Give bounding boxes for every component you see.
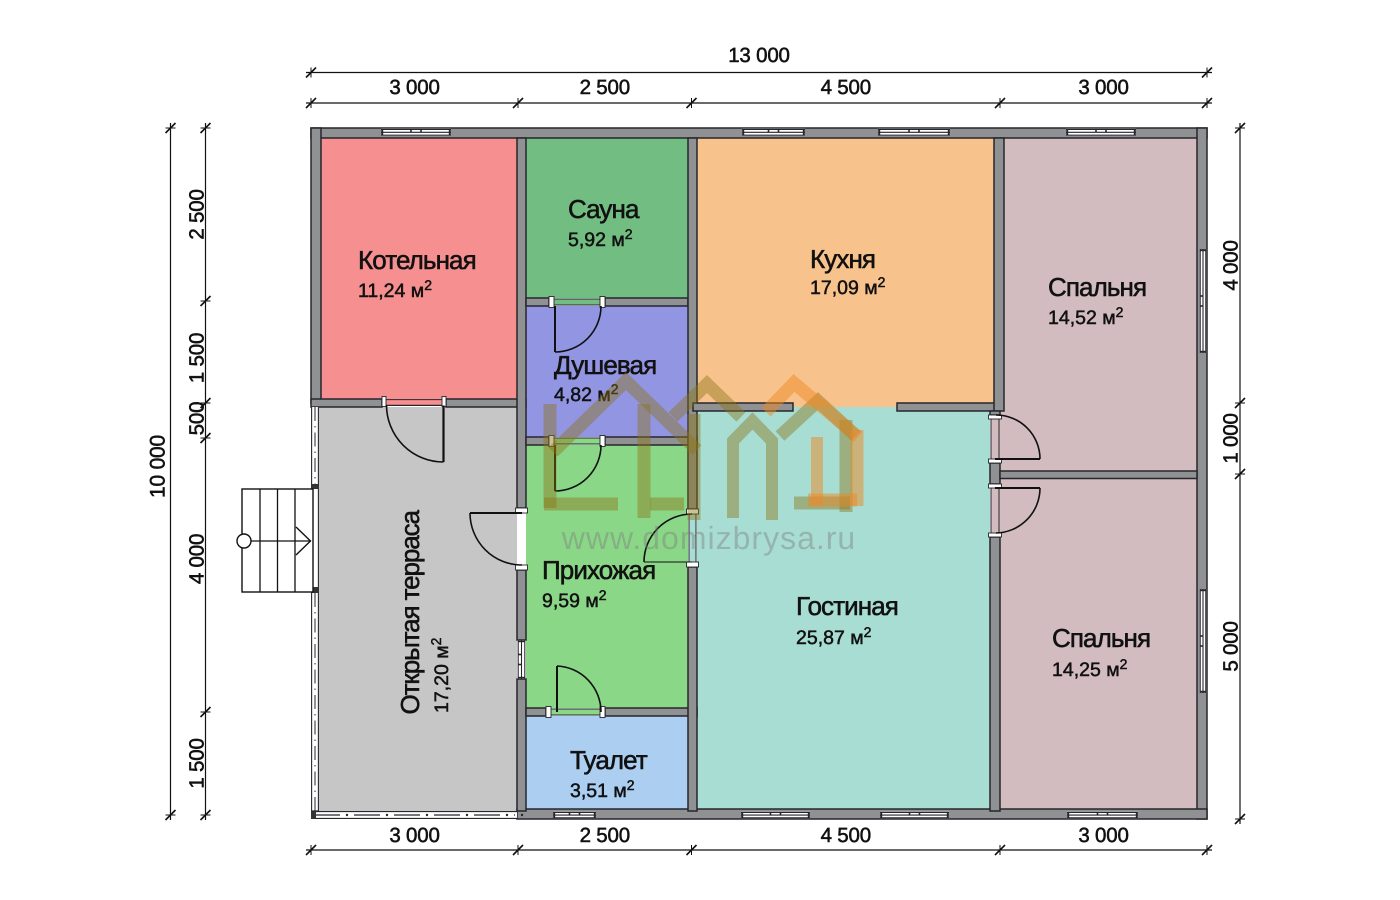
svg-text:13 000: 13 000 [728, 44, 790, 67]
svg-text:4 500: 4 500 [821, 76, 871, 99]
svg-text:10 000: 10 000 [147, 435, 170, 498]
svg-text:Гостиная: Гостиная [796, 591, 898, 621]
svg-text:1 000: 1 000 [1220, 413, 1243, 463]
svg-text:4 000: 4 000 [1220, 240, 1243, 290]
svg-text:3,51 м2: 3,51 м2 [570, 777, 635, 802]
svg-text:2 500: 2 500 [186, 189, 209, 239]
svg-text:3 000: 3 000 [389, 76, 439, 99]
svg-text:www.domizbrysa.ru: www.domizbrysa.ru [561, 520, 856, 556]
svg-text:1 500: 1 500 [186, 333, 209, 383]
svg-text:Сауна: Сауна [568, 194, 640, 224]
svg-text:5,92 м2: 5,92 м2 [568, 226, 633, 251]
svg-text:Прихожая: Прихожая [542, 555, 655, 585]
svg-text:4 500: 4 500 [821, 824, 871, 847]
svg-text:17,09 м2: 17,09 м2 [810, 274, 886, 299]
svg-text:Туалет: Туалет [570, 745, 648, 775]
svg-text:2 500: 2 500 [580, 824, 630, 847]
svg-text:Душевая: Душевая [554, 350, 656, 380]
svg-text:2 500: 2 500 [580, 76, 630, 99]
svg-text:Открытая терраса: Открытая терраса [395, 510, 425, 715]
svg-text:3 000: 3 000 [1078, 76, 1128, 99]
svg-text:4 000: 4 000 [186, 534, 209, 584]
svg-text:3 000: 3 000 [389, 824, 439, 847]
svg-text:14,52 м2: 14,52 м2 [1048, 304, 1124, 329]
svg-text:5 000: 5 000 [1220, 621, 1243, 671]
svg-text:500: 500 [186, 402, 209, 436]
svg-text:25,87 м2: 25,87 м2 [796, 624, 872, 649]
svg-text:Спальня: Спальня [1048, 272, 1146, 302]
svg-text:Спальня: Спальня [1052, 623, 1150, 653]
svg-text:Кухня: Кухня [810, 244, 875, 274]
svg-text:11,24 м2: 11,24 м2 [358, 277, 432, 302]
svg-text:Котельная: Котельная [358, 245, 476, 275]
svg-text:17,20 м2: 17,20 м2 [428, 637, 453, 713]
svg-text:14,25 м2: 14,25 м2 [1052, 656, 1128, 681]
svg-text:3 000: 3 000 [1078, 824, 1128, 847]
svg-text:1 500: 1 500 [186, 738, 209, 788]
svg-text:9,59 м2: 9,59 м2 [542, 587, 607, 612]
